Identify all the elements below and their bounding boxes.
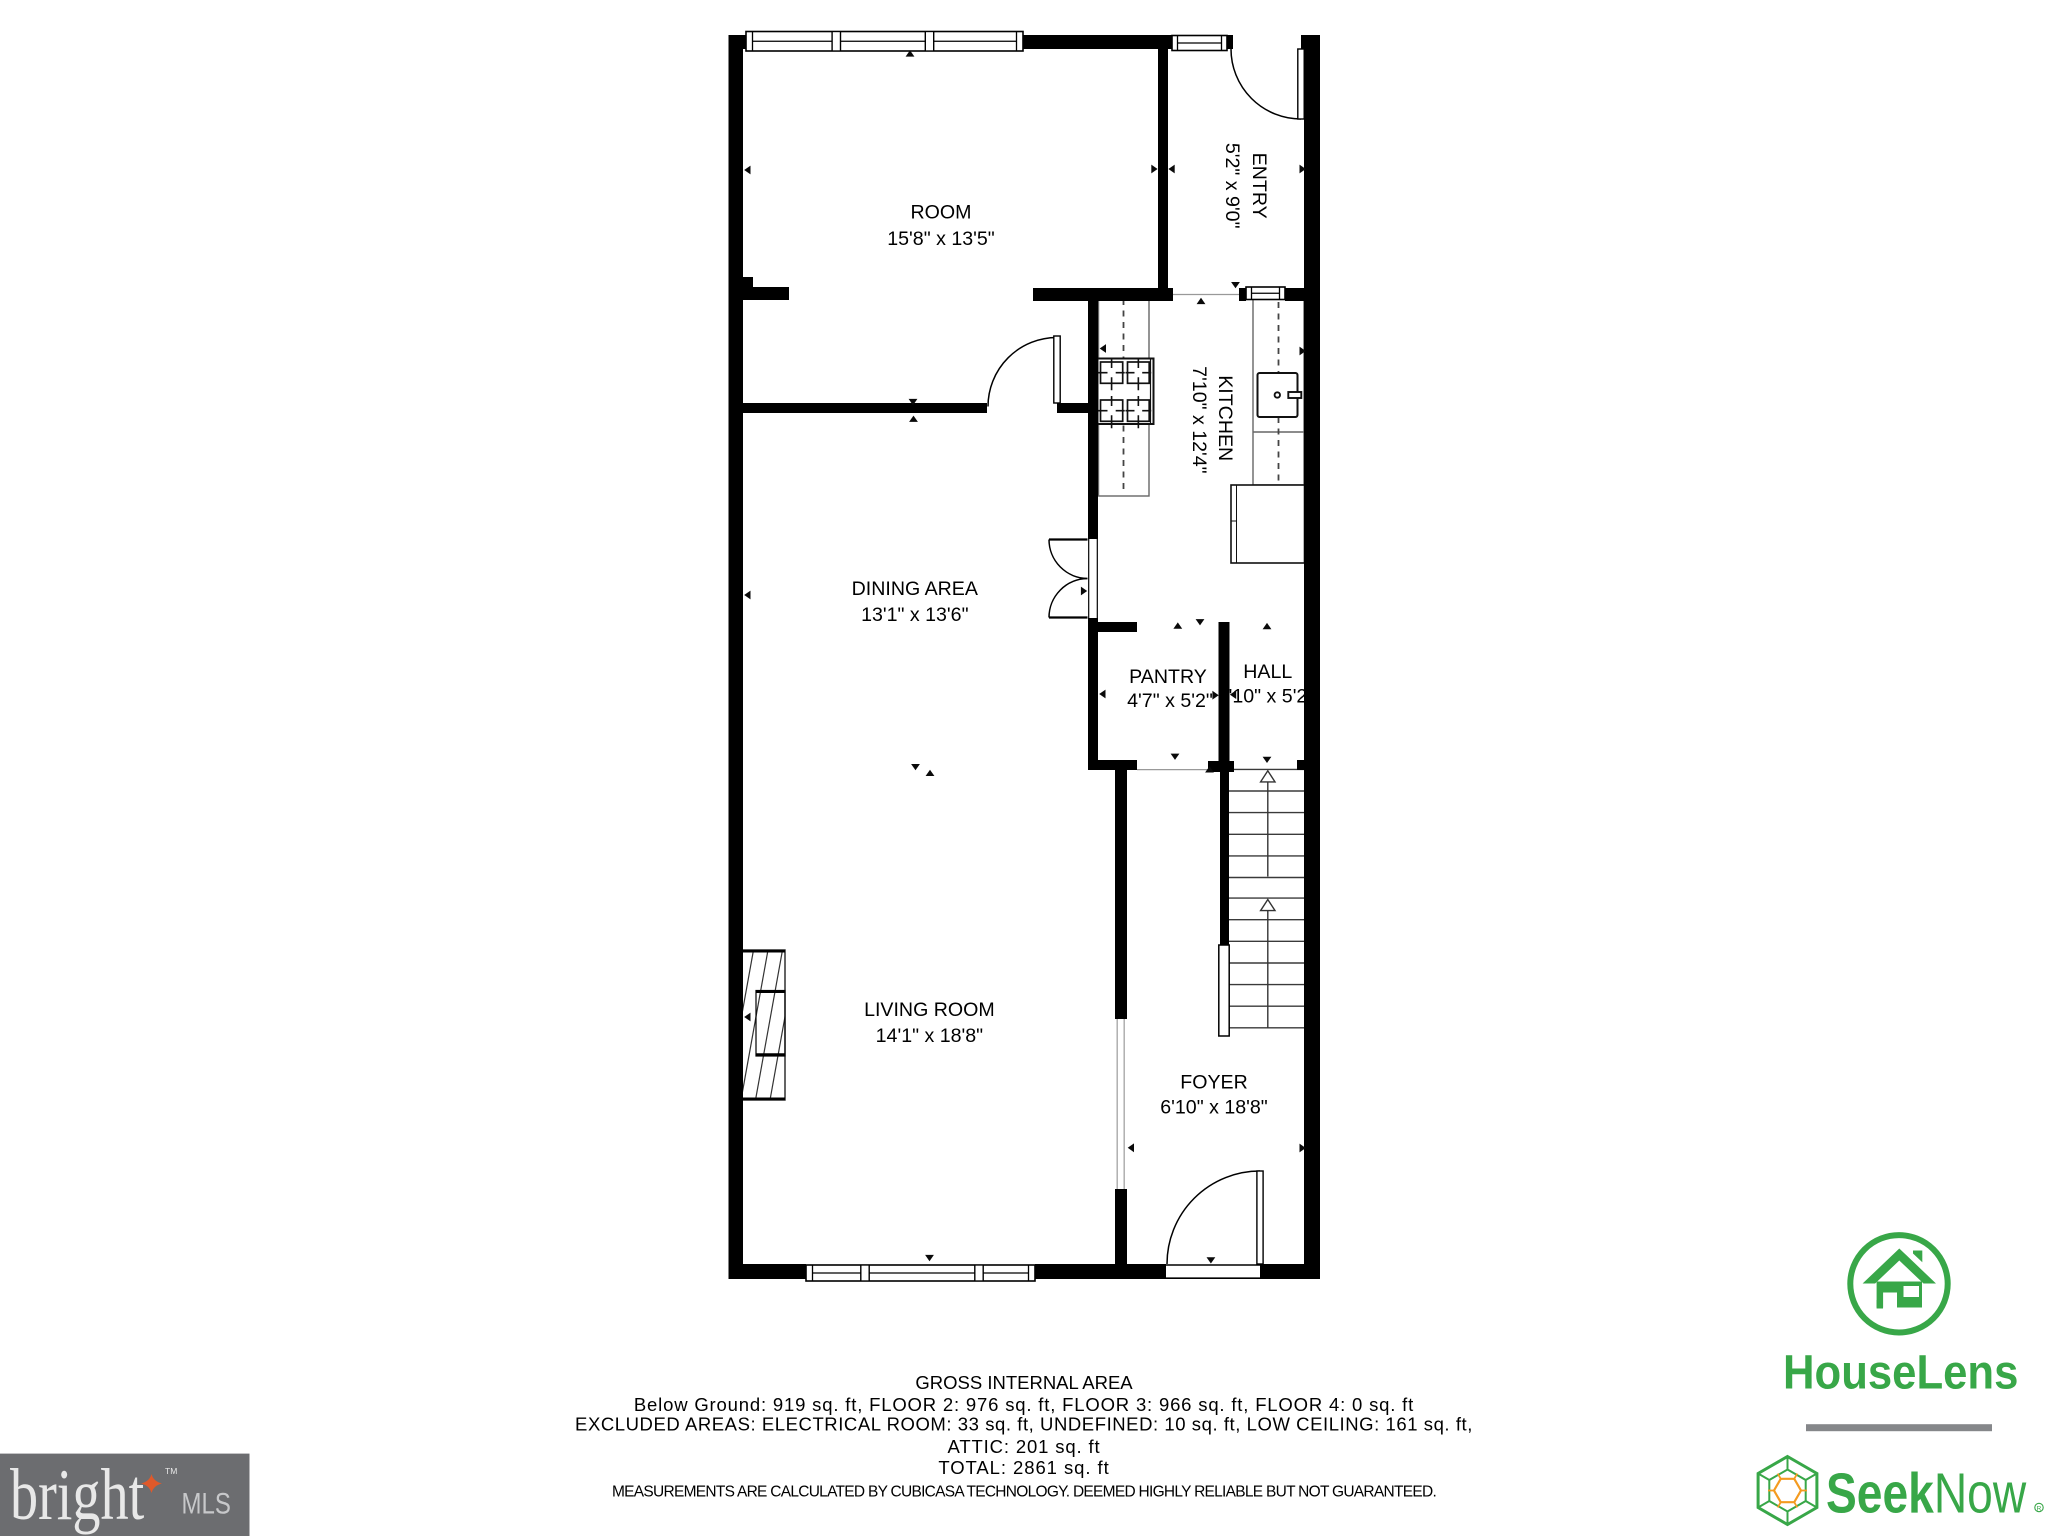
svg-text:KITCHEN: KITCHEN (1214, 375, 1236, 461)
svg-text:MEASUREMENTS ARE CALCULATED BY: MEASUREMENTS ARE CALCULATED BY CUBICASA … (612, 1483, 1436, 1500)
svg-text:15'8" x 13'5": 15'8" x 13'5" (887, 228, 995, 250)
svg-text:TM: TM (165, 1466, 177, 1476)
svg-text:13'1" x 13'6": 13'1" x 13'6" (861, 604, 969, 626)
svg-text:MLS: MLS (182, 1486, 231, 1520)
svg-text:ENTRY: ENTRY (1248, 153, 1270, 219)
svg-text:EXCLUDED AREAS: ELECTRICAL ROO: EXCLUDED AREAS: ELECTRICAL ROOM: 33 sq. … (575, 1414, 1473, 1435)
svg-text:FOYER: FOYER (1180, 1072, 1248, 1094)
svg-text:6'10" x 18'8": 6'10" x 18'8" (1160, 1097, 1268, 1119)
svg-text:HALL: HALL (1243, 661, 1292, 683)
svg-text:TOTAL: 2861 sq. ft: TOTAL: 2861 sq. ft (938, 1457, 1109, 1478)
svg-text:HouseLens: HouseLens (1783, 1345, 2018, 1399)
svg-text:SeekNow: SeekNow (1826, 1461, 2027, 1525)
svg-text:5'2" x 9'0": 5'2" x 9'0" (1221, 143, 1243, 229)
svg-text:GROSS INTERNAL AREA: GROSS INTERNAL AREA (915, 1372, 1133, 1393)
svg-text:R: R (2037, 1506, 2042, 1513)
svg-text:bright: bright (10, 1455, 144, 1536)
svg-text:4'7" x 5'2": 4'7" x 5'2" (1127, 690, 1213, 712)
svg-text:7'10" x 12'4": 7'10" x 12'4" (1188, 366, 1210, 474)
svg-text:DINING AREA: DINING AREA (852, 578, 979, 600)
svg-text:14'1" x 18'8": 14'1" x 18'8" (876, 1025, 984, 1047)
svg-text:LIVING ROOM: LIVING ROOM (864, 999, 995, 1021)
svg-text:ROOM: ROOM (911, 202, 972, 224)
svg-text:Below Ground: 919 sq. ft, FLOO: Below Ground: 919 sq. ft, FLOOR 2: 976 s… (634, 1394, 1414, 1415)
svg-text:2'10" x 5'2": 2'10" x 5'2" (1218, 686, 1315, 708)
svg-text:PANTRY: PANTRY (1129, 666, 1207, 688)
svg-text:ATTIC: 201 sq. ft: ATTIC: 201 sq. ft (948, 1436, 1101, 1457)
